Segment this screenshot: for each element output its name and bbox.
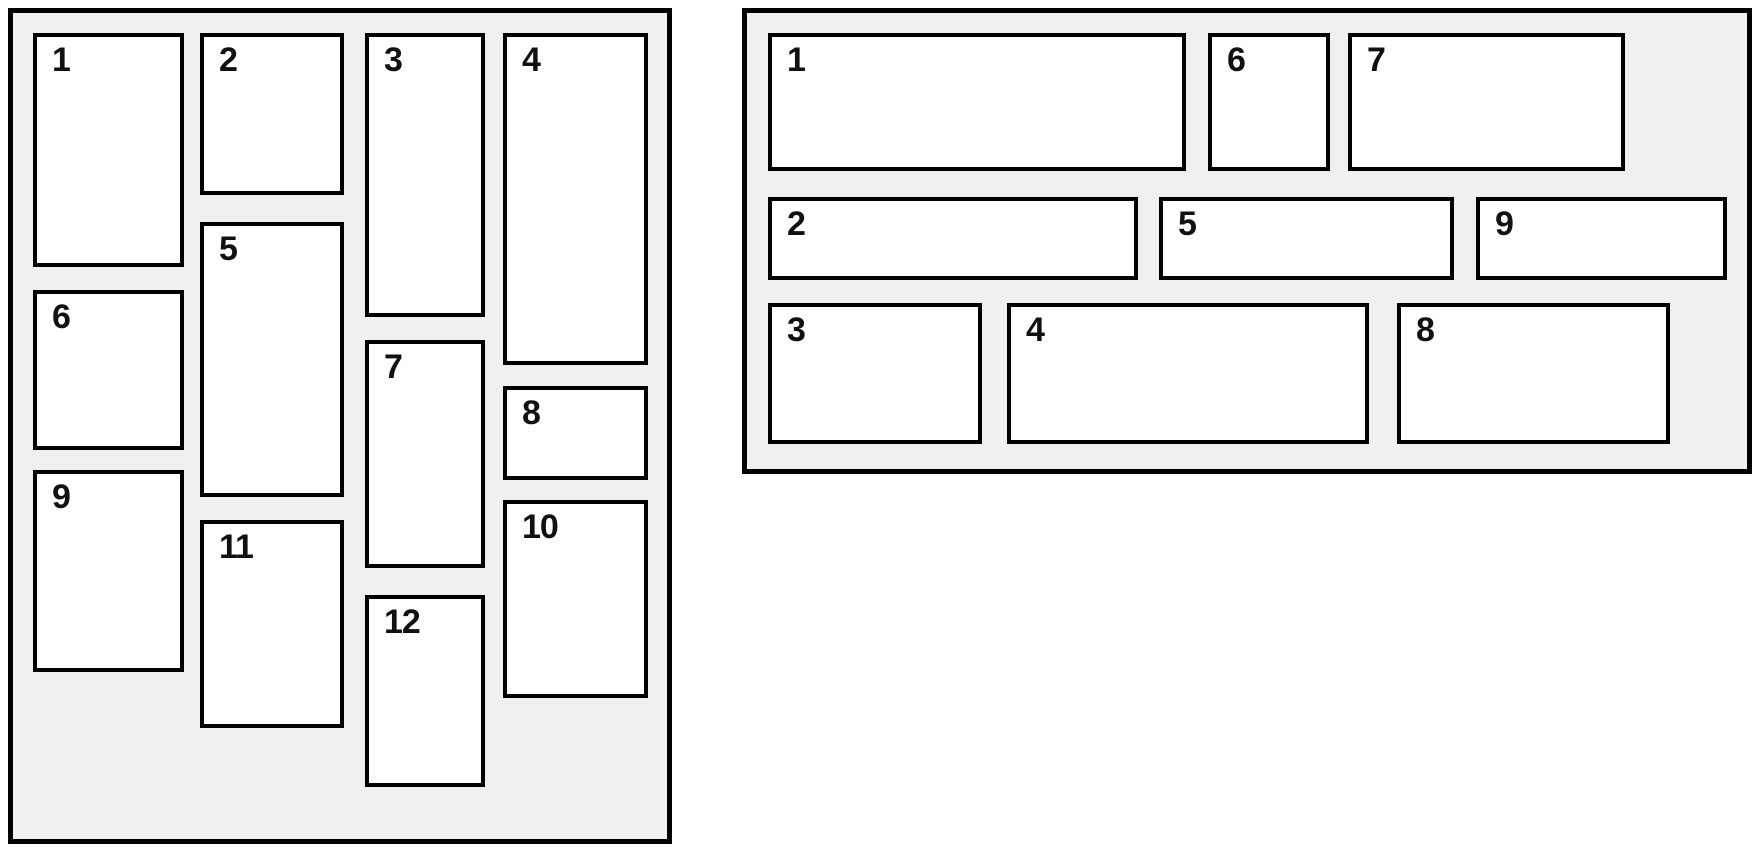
masonry-item: 7: [1348, 33, 1625, 171]
masonry-item-number: 4: [1011, 307, 1365, 349]
masonry-item-number: 6: [37, 294, 180, 336]
masonry-item: 3: [365, 33, 485, 317]
masonry-item: 2: [768, 197, 1138, 280]
masonry-item: 7: [365, 340, 485, 568]
masonry-item-number: 2: [772, 201, 1134, 243]
masonry-item: 10: [503, 500, 648, 698]
masonry-item: 8: [503, 386, 648, 480]
masonry-item-number: 1: [37, 37, 180, 79]
masonry-item-number: 11: [204, 524, 340, 566]
masonry-item-number: 3: [369, 37, 481, 79]
horizontal-masonry-panel: 167259348: [742, 8, 1752, 474]
masonry-item: 11: [200, 520, 344, 728]
masonry-item-number: 5: [204, 226, 340, 268]
masonry-item-number: 1: [772, 37, 1182, 79]
masonry-item: 3: [768, 303, 982, 444]
masonry-item: 5: [200, 222, 344, 497]
masonry-item-number: 10: [507, 504, 644, 546]
vertical-masonry-panel: 123456789101112: [8, 8, 672, 844]
masonry-item: 6: [33, 290, 184, 450]
masonry-item: 1: [768, 33, 1186, 171]
masonry-item-number: 7: [369, 344, 481, 386]
masonry-item: 9: [1476, 197, 1727, 280]
masonry-item-number: 8: [1401, 307, 1666, 349]
masonry-item: 9: [33, 470, 184, 672]
masonry-item-number: 8: [507, 390, 644, 432]
masonry-item: 4: [503, 33, 648, 365]
masonry-item: 6: [1208, 33, 1330, 171]
masonry-item-number: 4: [507, 37, 644, 79]
horizontal-masonry-panel-inner: 167259348: [747, 13, 1747, 469]
masonry-item-number: 12: [369, 599, 481, 641]
vertical-masonry-panel-inner: 123456789101112: [13, 13, 667, 839]
masonry-item: 5: [1159, 197, 1454, 280]
masonry-layout-diagram: 123456789101112 167259348: [0, 0, 1755, 852]
masonry-item-number: 5: [1163, 201, 1450, 243]
masonry-item: 1: [33, 33, 184, 267]
masonry-item-number: 9: [1480, 201, 1723, 243]
masonry-item-number: 6: [1212, 37, 1326, 79]
masonry-item-number: 2: [204, 37, 340, 79]
masonry-item: 8: [1397, 303, 1670, 444]
masonry-item: 12: [365, 595, 485, 787]
masonry-item-number: 9: [37, 474, 180, 516]
masonry-item-number: 3: [772, 307, 978, 349]
masonry-item: 2: [200, 33, 344, 195]
masonry-item-number: 7: [1352, 37, 1621, 79]
masonry-item: 4: [1007, 303, 1369, 444]
